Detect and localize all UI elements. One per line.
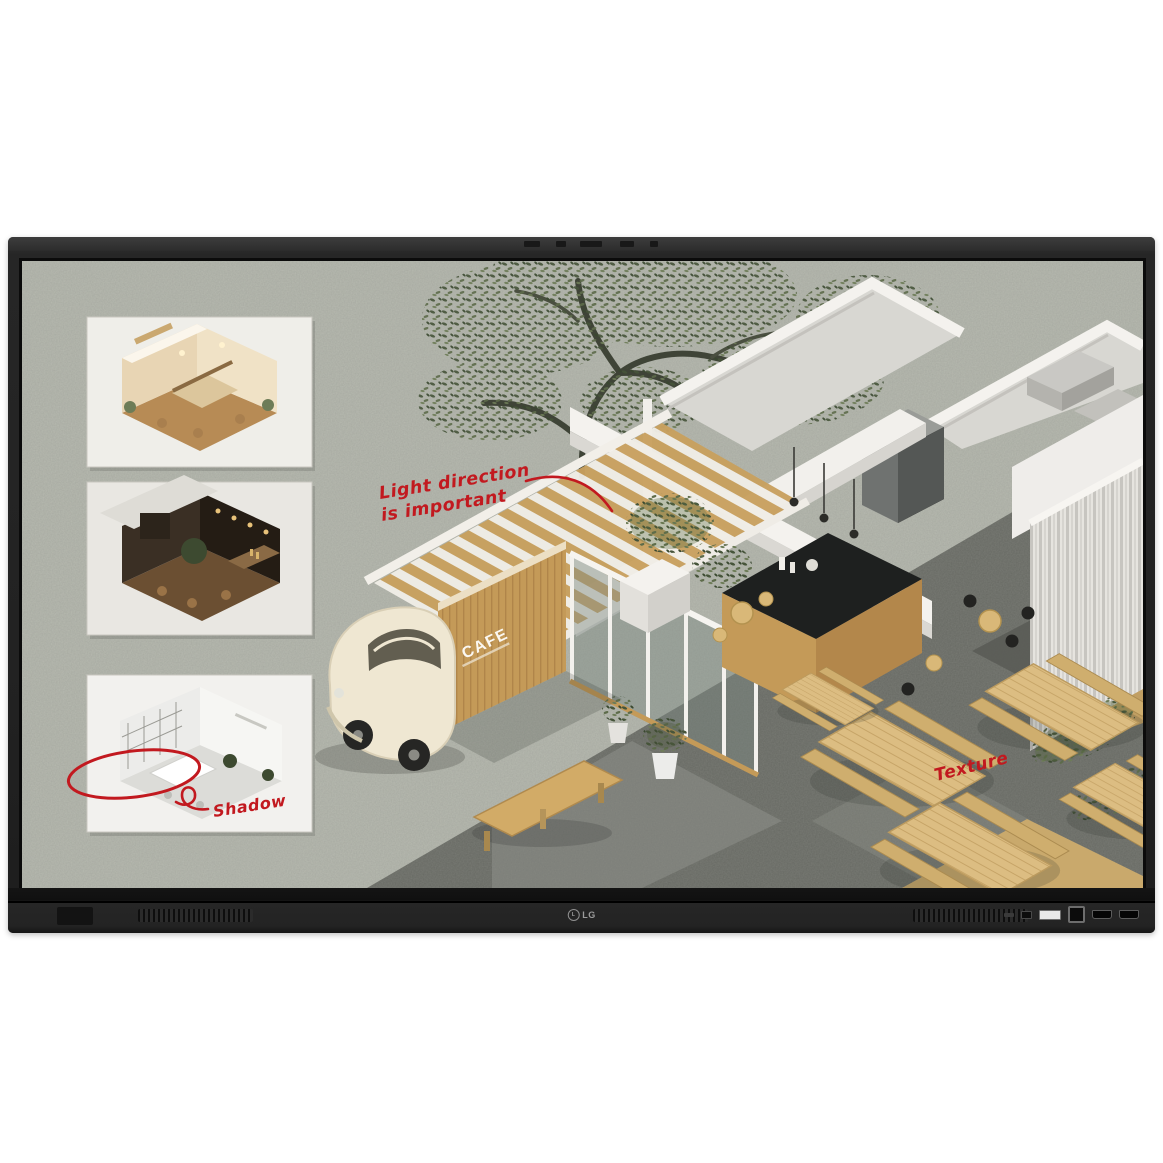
hdmi-port-2 (1119, 910, 1139, 919)
thumbnail-warm-interior (87, 317, 315, 471)
ambient-sensor-icon (580, 241, 602, 247)
mic-sensor-icon (524, 241, 540, 247)
ports-cluster (1004, 906, 1139, 923)
lg-display: CAFE (8, 237, 1155, 933)
ambient-sensor-icon (620, 241, 634, 247)
top-bezel (8, 237, 1155, 251)
ir-receiver-window (57, 907, 93, 925)
lg-logo-icon: L (567, 909, 579, 921)
lg-logo-text: LG (582, 910, 596, 920)
thumbnail-bright-interior (87, 675, 315, 836)
left-speaker-grille (138, 909, 253, 922)
mic-sensor-icon (556, 241, 566, 247)
usb-a-port (1039, 910, 1061, 920)
lg-logo: L LG (567, 909, 596, 921)
usb-c-port (1021, 911, 1032, 919)
thumbnail-dark-interior (87, 475, 315, 639)
screen: CAFE (22, 261, 1143, 888)
hdmi-port-1 (1092, 910, 1112, 919)
port-label-icon (1004, 913, 1014, 917)
touch-usb-b-port (1068, 906, 1085, 923)
screen-scene: CAFE (22, 261, 1143, 888)
camera-icon (650, 241, 658, 247)
bezel-seam (8, 901, 1155, 903)
bottom-bezel: L LG (8, 888, 1155, 933)
